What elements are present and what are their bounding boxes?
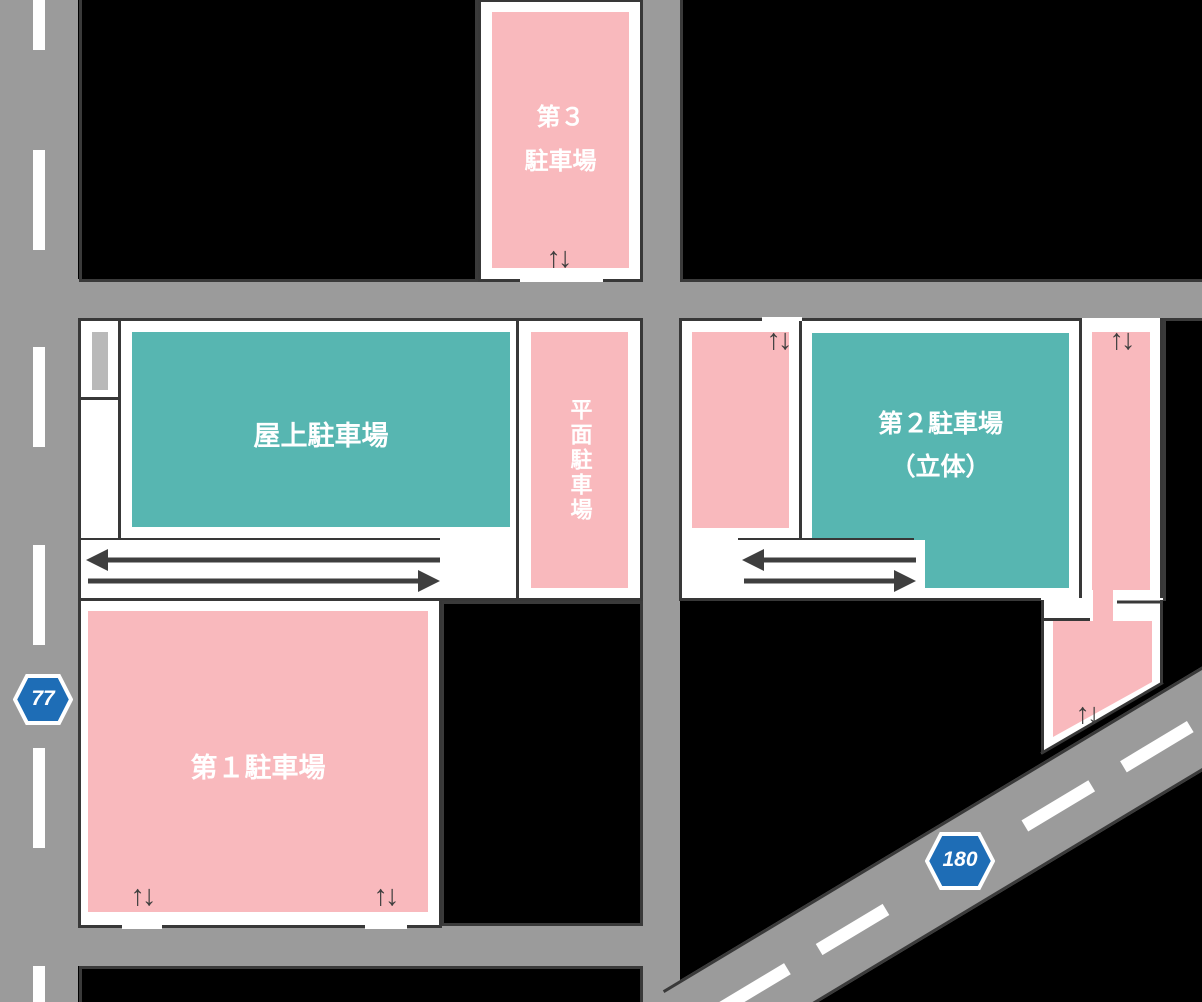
lot1-label: 第１駐車場 bbox=[88, 746, 428, 785]
lot1-entrance-gap-right bbox=[365, 924, 407, 929]
route-sign-180: 180 bbox=[925, 830, 995, 892]
parking-access-map: 第３ 駐車場 ↑↓ 屋上駐車場 平面駐車場 第１駐車場 ↑↓ ↑↓ ↑↓ 第２駐… bbox=[0, 0, 1202, 1002]
lane-dash bbox=[33, 545, 45, 645]
right-entry-parking-area bbox=[1092, 332, 1150, 590]
inner-wall-vertical-lot2 bbox=[799, 321, 802, 540]
entrance-arrow-icon: ↑↓ bbox=[1089, 322, 1153, 358]
road-left-vertical bbox=[0, 0, 78, 1002]
entrance-arrow-icon: ↑↓ bbox=[526, 240, 590, 276]
entrance-arrow-icon: ↑↓ bbox=[1055, 696, 1119, 732]
lot2-surface-parking-area bbox=[692, 332, 789, 528]
lot2-label-line2: （立体） bbox=[812, 446, 1069, 489]
lane-dash bbox=[816, 904, 890, 955]
rooftop-label: 屋上駐車場 bbox=[132, 414, 510, 453]
lot3-label: 第３ 駐車場 bbox=[492, 96, 629, 184]
route-sign-180-number: 180 bbox=[925, 830, 995, 892]
lane-dash bbox=[33, 347, 45, 447]
lane-dash bbox=[1120, 721, 1194, 772]
lot2-label-line1: 第２駐車場 bbox=[812, 403, 1069, 446]
lane-dash bbox=[33, 748, 45, 848]
lane-divider-line bbox=[81, 538, 440, 540]
lot3-label-line2: 駐車場 bbox=[492, 140, 629, 184]
inner-wall-horizontal bbox=[81, 397, 121, 400]
route-sign-77: 77 bbox=[13, 672, 73, 727]
lot1-entrance-gap-left bbox=[122, 924, 162, 929]
circulation-arrows-lot2 bbox=[740, 548, 920, 592]
circulation-arrows bbox=[82, 548, 444, 592]
lot3-entrance-gap bbox=[520, 277, 603, 282]
city-block-right-sliver bbox=[1163, 318, 1202, 604]
lane-divider-line-lot2 bbox=[738, 538, 914, 540]
entrance-arrow-icon: ↑↓ bbox=[353, 878, 417, 914]
road-middle-vertical bbox=[643, 0, 680, 1002]
ramp-rect bbox=[92, 332, 108, 390]
route-sign-77-number: 77 bbox=[13, 672, 73, 727]
city-block-bottom-left bbox=[79, 966, 643, 1002]
city-block-middle bbox=[441, 601, 643, 926]
lane-dash bbox=[33, 150, 45, 250]
flat-parking-area: 平面駐車場 bbox=[531, 332, 628, 588]
lot3-label-line1: 第３ bbox=[492, 96, 629, 140]
lane-dash bbox=[1021, 780, 1095, 831]
lane-dash bbox=[717, 963, 791, 1002]
inner-wall-vertical bbox=[118, 321, 121, 540]
lane-dash bbox=[33, 0, 45, 50]
entrance-arrow-icon: ↑↓ bbox=[110, 878, 174, 914]
road-top-horizontal bbox=[0, 279, 1202, 318]
road-bottom-horizontal bbox=[0, 926, 680, 966]
flat-parking-label: 平面駐車場 bbox=[564, 398, 596, 523]
city-block-top-right bbox=[680, 0, 1202, 282]
city-block-top-left bbox=[79, 0, 478, 282]
lot2-label: 第２駐車場 （立体） bbox=[812, 403, 1069, 489]
